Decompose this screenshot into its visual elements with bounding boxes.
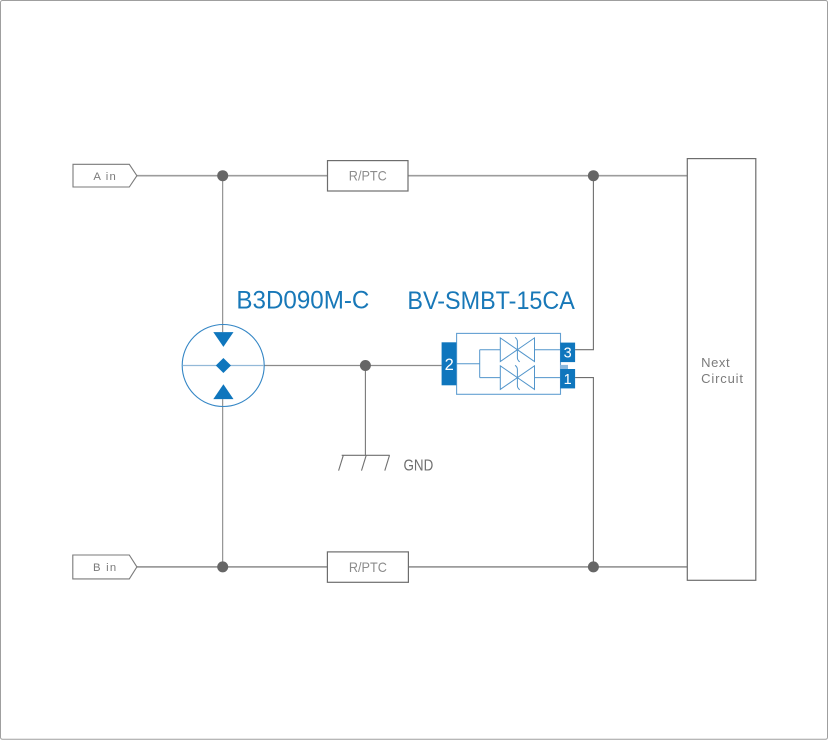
svg-text:R/PTC: R/PTC <box>349 559 387 575</box>
svg-text:R/PTC: R/PTC <box>349 168 387 184</box>
svg-text:2: 2 <box>445 356 454 374</box>
svg-text:Circuit: Circuit <box>701 371 744 386</box>
svg-text:A in: A in <box>93 171 117 183</box>
svg-text:GND: GND <box>404 458 434 475</box>
svg-text:3: 3 <box>564 346 572 362</box>
svg-text:1: 1 <box>564 372 572 388</box>
svg-text:B3D090M-C: B3D090M-C <box>236 287 369 315</box>
svg-text:Next: Next <box>701 355 730 370</box>
svg-text:B in: B in <box>93 562 117 574</box>
svg-text:BV-SMBT-15CA: BV-SMBT-15CA <box>407 287 575 315</box>
